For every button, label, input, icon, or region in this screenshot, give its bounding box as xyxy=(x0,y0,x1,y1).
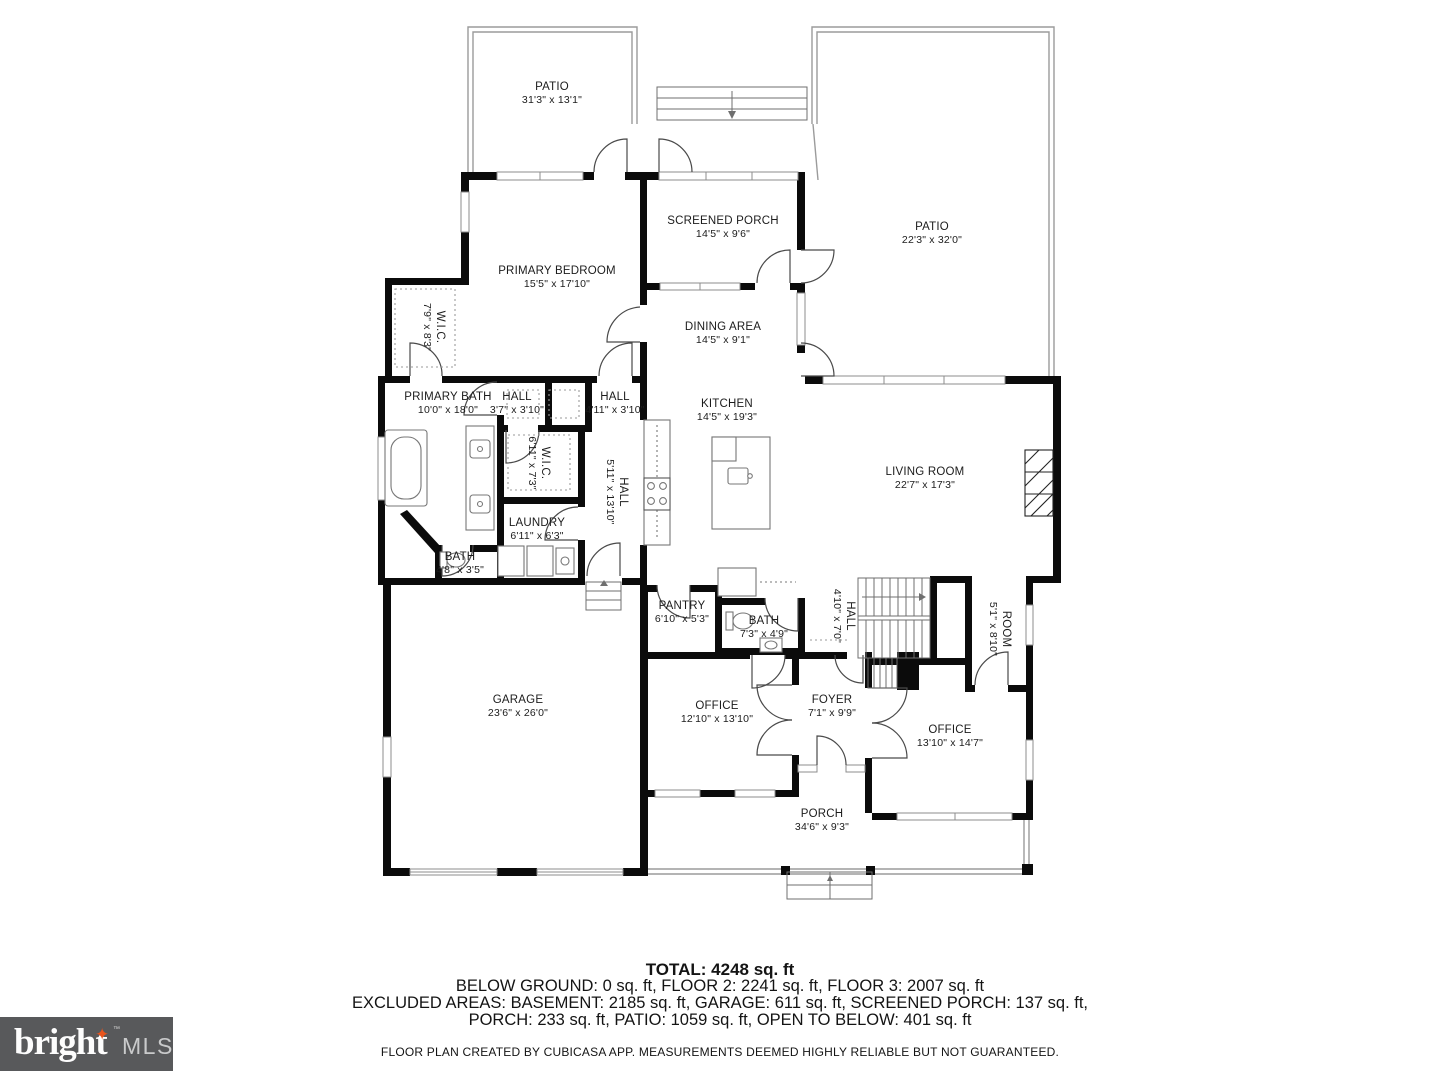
floor-plan-svg: PATIO 31'3" x 13'1" PATIO 22'3" x 32'0" … xyxy=(0,0,1440,1080)
door-office1-double-a xyxy=(757,685,792,720)
bright-mls-logo: bright ✦ ™ MLS xyxy=(0,1017,173,1071)
washer-dryer xyxy=(498,546,574,576)
room-label-kitchen: KITCHEN xyxy=(701,398,753,410)
front-porch-steps xyxy=(787,872,872,899)
main-staircase xyxy=(858,578,930,658)
room-dims-hall-2: 4'11" x 3'10" xyxy=(585,404,644,416)
stove xyxy=(644,478,670,510)
door-screened-porch-patio-top xyxy=(659,139,692,172)
floor-areas-line: BELOW GROUND: 0 sq. ft, FLOOR 2: 2241 sq… xyxy=(0,978,1440,995)
room-dims-hall-3: 5'11" x 13'10" xyxy=(604,459,616,525)
door-room xyxy=(975,652,1008,685)
room-dims-primary-bath: 10'0" x 18'0" xyxy=(418,404,478,416)
room-label-laundry: LAUNDRY xyxy=(509,517,565,529)
room-dims-dining-area: 14'5" x 9'1" xyxy=(696,334,750,346)
room-label-patio-top-right: PATIO xyxy=(915,221,949,233)
exterior-deck-stairs xyxy=(657,87,807,120)
room-label-wic-left: W.I.C. xyxy=(434,311,446,344)
excluded-areas-line-1: EXCLUDED AREAS: BASEMENT: 2185 sq. ft, G… xyxy=(0,995,1440,1012)
room-dims-living-room: 22'7" x 17'3" xyxy=(895,479,955,491)
room-dims-pantry: 6'10" x 5'3" xyxy=(655,613,709,625)
room-label-hall-1: HALL xyxy=(502,391,532,403)
door-front xyxy=(817,736,846,765)
room-dims-kitchen: 14'5" x 19'3" xyxy=(697,411,757,423)
total-area: TOTAL: 4248 sq. ft xyxy=(0,961,1440,978)
disclaimer-text: FLOOR PLAN CREATED BY CUBICASA APP. MEAS… xyxy=(0,1044,1440,1061)
bright-mls-suffix-text: MLS xyxy=(122,1033,174,1060)
room-label-primary-bedroom: PRIMARY BEDROOM xyxy=(498,265,616,277)
room-dims-porch: 34'6" x 9'3" xyxy=(795,821,849,833)
excluded-areas-line-2: PORCH: 233 sq. ft, PATIO: 1059 sq. ft, O… xyxy=(0,1012,1440,1029)
room-label-pantry: PANTRY xyxy=(659,600,706,612)
room-label-room: ROOM xyxy=(1000,611,1012,648)
garage-entry-steps xyxy=(586,580,621,610)
door-bedroom-patio xyxy=(594,139,627,172)
door-office1-double-b xyxy=(757,720,792,755)
room-dims-patio-top-left: 31'3" x 13'1" xyxy=(522,94,582,106)
fireplace xyxy=(1025,450,1053,516)
room-label-hall-2: HALL xyxy=(600,391,630,403)
star-icon: ✦ xyxy=(95,1025,109,1045)
pantry-cabinet xyxy=(718,568,796,596)
room-label-screened-porch: SCREENED PORCH xyxy=(667,215,778,227)
room-dims-office-2: 13'10" x 14'7" xyxy=(917,737,983,749)
door-dining-patio xyxy=(801,343,834,376)
room-dims-room: 5'1" x 8'10" xyxy=(987,602,999,656)
room-dims-laundry: 6'11" x 6'3" xyxy=(510,530,563,542)
room-label-living-room: LIVING ROOM xyxy=(886,466,965,478)
door-screened-porch-patio-right xyxy=(801,250,834,283)
door-dining-screened-porch xyxy=(757,250,790,283)
labels-layer: PATIO 31'3" x 13'1" PATIO 22'3" x 32'0" … xyxy=(404,81,1012,833)
door-office2-double-b xyxy=(872,723,907,758)
room-label-office-1: OFFICE xyxy=(695,700,738,712)
room-label-dining-area: DINING AREA xyxy=(685,321,761,333)
room-label-bath-1: BATH xyxy=(445,551,476,563)
kitchen-island xyxy=(712,437,770,529)
room-dims-hall-1: 3'7" x 3'10" xyxy=(490,404,544,416)
door-bedroom-dining xyxy=(607,307,640,342)
room-label-foyer: FOYER xyxy=(812,694,853,706)
room-label-wic-2: W.I.C. xyxy=(539,447,551,480)
room-dims-bath-1: 4'8" x 3'5" xyxy=(436,564,484,576)
room-label-hall-4: HALL xyxy=(844,601,856,631)
bathtub xyxy=(385,430,427,506)
room-dims-screened-porch: 14'5" x 9'6" xyxy=(696,228,750,240)
room-dims-garage: 23'6" x 26'0" xyxy=(488,707,548,719)
room-dims-hall-4: 4'10" x 7'0" xyxy=(831,589,843,643)
door-office2-double-a xyxy=(872,688,907,723)
patio-top-right-outline xyxy=(812,27,1054,376)
room-dims-primary-bedroom: 15'5" x 17'10" xyxy=(524,278,590,290)
room-label-patio-top-left: PATIO xyxy=(535,81,569,93)
room-dims-wic-2: 6'11" x 7'3" xyxy=(526,436,538,489)
door-hall-3 xyxy=(587,543,620,576)
room-label-bath-2: BATH xyxy=(749,615,780,627)
door-foyer-hall xyxy=(835,655,863,683)
area-summary: TOTAL: 4248 sq. ft BELOW GROUND: 0 sq. f… xyxy=(0,961,1440,1061)
room-label-primary-bath: PRIMARY BATH xyxy=(404,391,491,403)
room-dims-wic-left: 7'9" x 8'3" xyxy=(421,303,433,351)
room-dims-bath-2: 7'3" x 4'9" xyxy=(740,628,788,640)
room-label-office-2: OFFICE xyxy=(928,724,971,736)
door-office1-top xyxy=(752,655,785,688)
double-vanity xyxy=(466,426,494,530)
patio-top-right-outline-inner xyxy=(817,32,1049,376)
bright-mls-brand-text: bright xyxy=(14,1021,107,1064)
room-label-porch: PORCH xyxy=(801,808,844,820)
room-dims-patio-top-right: 22'3" x 32'0" xyxy=(902,234,962,246)
room-dims-foyer: 7'1" x 9'9" xyxy=(808,707,856,719)
room-dims-office-1: 12'10" x 13'10" xyxy=(681,713,753,725)
trademark-symbol: ™ xyxy=(113,1026,120,1033)
room-label-garage: GARAGE xyxy=(493,694,544,706)
door-bedroom-hall xyxy=(599,343,632,376)
room-label-hall-3: HALL xyxy=(617,477,629,507)
